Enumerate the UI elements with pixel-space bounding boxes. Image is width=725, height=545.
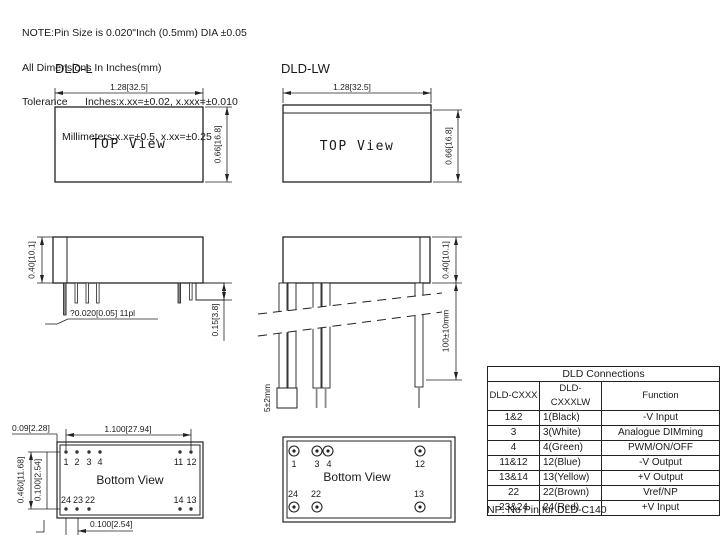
table-row: 13&14 13(Yellow) +V Output xyxy=(488,471,720,486)
dld-l-side-height-dim-text: 0.40[10.1] xyxy=(27,241,37,279)
table-cell: 22 xyxy=(488,486,540,501)
dld-lw-top-view: DLD-LW TOP View 1.28[32.5] 0.66[16.8] xyxy=(281,61,462,182)
dld-lw-bottom-view-text: Bottom View xyxy=(323,470,390,484)
wire-length-dim-text: 100±10mm xyxy=(441,310,451,352)
dld-lw-height-dim-text: 0.66[16.8] xyxy=(444,127,454,165)
table-cell: 12(Blue) xyxy=(540,456,602,471)
pin-label: 1 xyxy=(63,457,68,467)
dld-l-side-view: 0.40[10.1] 0.15[3.8] ?0.020[0.05] 11pl xyxy=(27,237,233,341)
table-row: 4 4(Green) PWM/ON/OFF xyxy=(488,441,720,456)
table-header: Function xyxy=(602,382,720,411)
row-pitch-dim-text: 0.100[2.54] xyxy=(33,459,43,502)
table-cell: 13(Yellow) xyxy=(540,471,602,486)
dld-lw-side-view: 5±2mm 0.40[10.1] 100±10mm xyxy=(258,237,462,412)
edge-offset-dimension xyxy=(12,434,57,445)
pin-label: 23 xyxy=(73,495,83,505)
dld-lw-side-height-dim-text: 0.40[10.1] xyxy=(441,241,451,279)
table-title-row: DLD Connections xyxy=(488,367,720,382)
table-cell: 4 xyxy=(488,441,540,456)
pin-label: 2 xyxy=(74,457,79,467)
table-cell: Analogue DIMming xyxy=(602,426,720,441)
table-row: 3 3(White) Analogue DIMming xyxy=(488,426,720,441)
table-row: 22 22(Brown) Vref/NP xyxy=(488,486,720,501)
table-cell: 3 xyxy=(488,426,540,441)
table-title: DLD Connections xyxy=(488,367,720,382)
pin-label: 22 xyxy=(85,495,95,505)
pin-label: 12 xyxy=(415,459,425,469)
pin-span-dim-text: 1.100[27.94] xyxy=(104,424,151,434)
table-cell: +V Output xyxy=(602,471,720,486)
pin-label: 3 xyxy=(314,459,319,469)
dld-l-pin-length-dim-text: 0.15[3.8] xyxy=(210,303,220,336)
dld-l-bottom-view: 1 2 3 4 11 12 24 23 22 14 13 Bottom View… xyxy=(12,423,203,535)
dld-l-top-view: DLD-L TOP View 1.28[32.5] 0.66[16.8] xyxy=(55,61,232,182)
dld-l-side-standoff xyxy=(196,283,224,300)
table-cell: PWM/ON/OFF xyxy=(602,441,720,456)
dld-l-width-dim-text: 1.28[32.5] xyxy=(110,82,148,92)
table-row: 1&2 1(Black) -V Input xyxy=(488,411,720,426)
table-cell: -V Output xyxy=(602,456,720,471)
wire-end-pins xyxy=(316,387,420,408)
pin-label: 12 xyxy=(186,457,196,467)
table-cell: 1&2 xyxy=(488,411,540,426)
table-cell: 3(White) xyxy=(540,426,602,441)
dld-lw-label: DLD-LW xyxy=(281,61,331,76)
pin-label: 1 xyxy=(291,459,296,469)
table-header-row: DLD-CXXX DLD-CXXXLW Function xyxy=(488,382,720,411)
table-cell: 4(Green) xyxy=(540,441,602,456)
dld-l-pin-callout xyxy=(45,319,158,324)
dld-l-label: DLD-L xyxy=(55,61,93,76)
dld-l-pin-note-text: ?0.020[0.05] 11pl xyxy=(70,308,135,318)
table-footnote: NP: No Pin for DLD-C140 xyxy=(487,504,607,516)
table-header: DLD-CXXXLW xyxy=(540,382,602,411)
pin-label: 3 xyxy=(86,457,91,467)
dld-lw-bottom-view: 1 3 4 12 24 22 13 Bottom View xyxy=(283,437,455,522)
dld-l-top-view-text: TOP View xyxy=(92,137,167,152)
table-cell: Vref/NP xyxy=(602,486,720,501)
dld-lw-width-dim-text: 1.28[32.5] xyxy=(333,82,371,92)
pin-label: 11 xyxy=(174,457,183,467)
dld-l-height-dim-text: 0.66[16.8] xyxy=(213,126,223,164)
table-row: 11&12 12(Blue) -V Output xyxy=(488,456,720,471)
pin-label: 13 xyxy=(186,495,196,505)
connections-table: DLD Connections DLD-CXXX DLD-CXXXLW Func… xyxy=(487,366,720,516)
table-cell: +V Input xyxy=(602,501,720,516)
dld-lw-top-view-text: TOP View xyxy=(320,139,395,154)
pin-label: 13 xyxy=(414,489,424,499)
dld-l-side-body xyxy=(53,237,203,283)
row-span-dim-text: 0.460[11.68] xyxy=(16,457,26,504)
edge-offset-dim-text: 0.09[2.28] xyxy=(12,423,50,433)
pin-label: 4 xyxy=(97,457,102,467)
table-cell: 13&14 xyxy=(488,471,540,486)
pin-label: 24 xyxy=(61,495,71,505)
pin-label: 22 xyxy=(311,489,321,499)
table-cell: 11&12 xyxy=(488,456,540,471)
pin-pitch-dim-text: 0.100[2.54] xyxy=(90,519,133,529)
pin-label: 14 xyxy=(173,495,183,505)
pin-label: 4 xyxy=(326,459,331,469)
pin-label: 24 xyxy=(288,489,298,499)
table-header: DLD-CXXX xyxy=(488,382,540,411)
dld-lw-side-body xyxy=(283,237,430,283)
wire-tinned-end xyxy=(277,388,297,408)
table-cell: -V Input xyxy=(602,411,720,426)
dld-l-side-height-dimension xyxy=(37,237,53,283)
dld-l-bottom-view-text: Bottom View xyxy=(96,473,163,487)
table-cell: 1(Black) xyxy=(540,411,602,426)
table-cell: 22(Brown) xyxy=(540,486,602,501)
strip-length-dim-text: 5±2mm xyxy=(262,384,272,412)
